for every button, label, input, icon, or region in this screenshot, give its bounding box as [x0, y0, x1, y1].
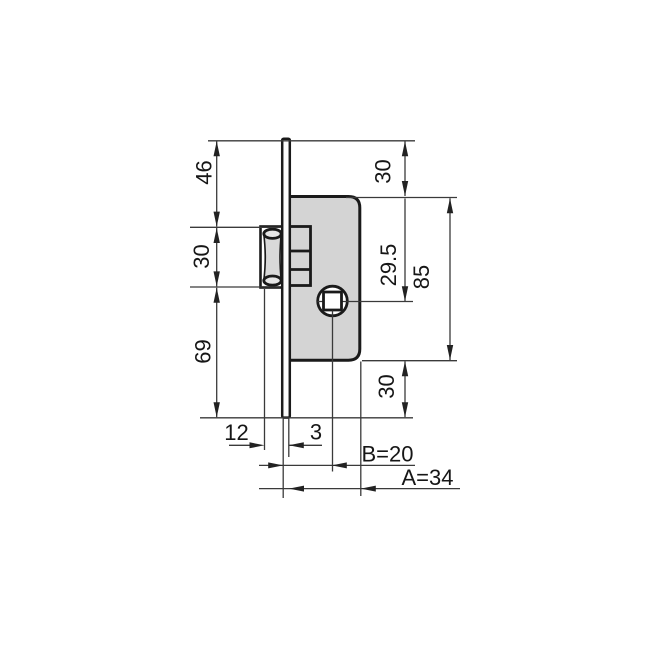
dim-29-5-label: 29.5	[376, 244, 401, 287]
dim-29-5: 29.5	[376, 199, 408, 302]
dim-30-bottom-right-label: 30	[374, 374, 399, 398]
latch-housing	[290, 227, 311, 286]
dim-30-top-right: 30	[370, 141, 408, 196]
dim-b20-label: B=20	[362, 442, 414, 467]
roller-latch	[261, 227, 284, 288]
roller-bottom-cap	[264, 276, 281, 285]
dim-85: 85	[409, 198, 453, 360]
dim-46-label: 46	[191, 160, 216, 184]
dim-30-latch: 30	[189, 228, 220, 286]
lock-dimension-drawing: 46 30 69 30 29.5 85 30	[0, 0, 645, 645]
dim-backset-b20: B=20	[259, 442, 415, 469]
dim-30-latch-label: 30	[189, 244, 214, 268]
spindle-square-hole	[324, 292, 342, 310]
dim-30-top-right-label: 30	[370, 159, 395, 183]
roller-top-cap	[264, 229, 281, 238]
dim-a34-label: A=34	[402, 465, 454, 490]
drawing-canvas: 46 30 69 30 29.5 85 30	[0, 0, 645, 645]
dim-69: 69	[190, 288, 220, 417]
dim-12-and-3: 12 3	[224, 420, 322, 449]
dim-depth-a34: A=34	[259, 465, 460, 492]
dim-46: 46	[191, 141, 220, 226]
faceplate	[282, 139, 290, 418]
dim-69-label: 69	[190, 339, 215, 363]
dim-85-label: 85	[409, 265, 434, 289]
dim-12-label: 12	[224, 420, 248, 445]
dim-30-bottom-right: 30	[374, 361, 408, 417]
dim-3-label: 3	[310, 420, 322, 445]
